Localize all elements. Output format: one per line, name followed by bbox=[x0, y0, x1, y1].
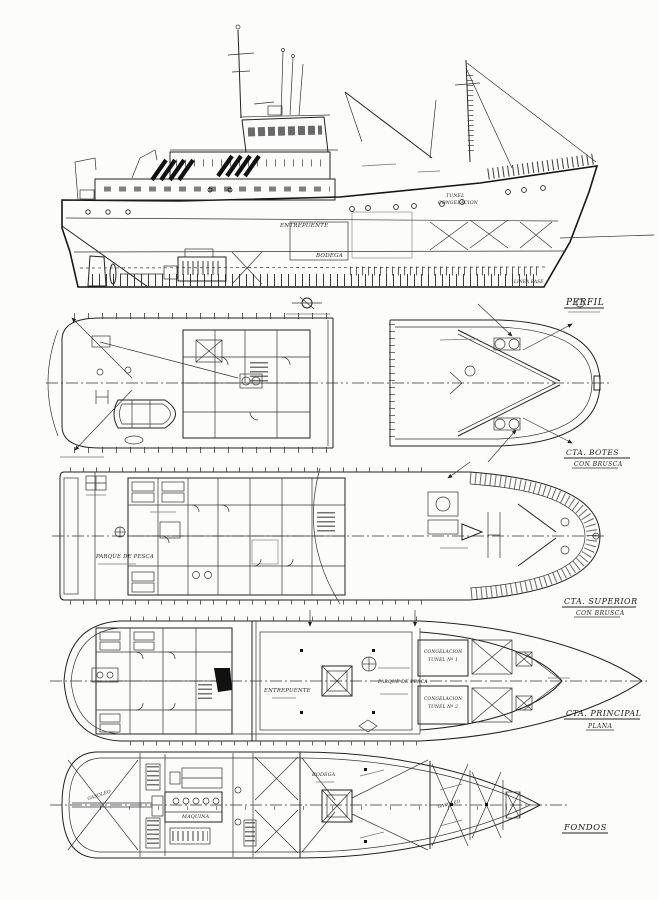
view-subtitle-botes: CON BRUSCA bbox=[574, 461, 623, 468]
arrangement-drawing: ENTREPUENTE BODEGA TUNEL CONGELACION LIN… bbox=[0, 0, 658, 900]
principal-cabins bbox=[92, 628, 232, 734]
botes-bow-plan bbox=[352, 299, 612, 462]
drawing-sheet: ENTREPUENTE BODEGA TUNEL CONGELACION LIN… bbox=[0, 0, 658, 900]
view-subtitle-superior: CON BRUSCA bbox=[576, 610, 625, 617]
view-title-superior: CTA. SUPERIOR bbox=[564, 597, 638, 606]
view-title-fondos: FONDOS bbox=[563, 823, 607, 833]
masts-rigging bbox=[75, 25, 596, 200]
label-entrepuente-perfil: ENTREPUENTE bbox=[279, 223, 328, 229]
view-cta-principal: ENTREPUENTE PARQUE DE PESCA CONGELACION … bbox=[50, 610, 650, 743]
principal-outline bbox=[50, 610, 650, 743]
lifeboat bbox=[114, 400, 176, 428]
shipyard-emblem-icon bbox=[286, 297, 330, 314]
label-linea-base: LINEA BASE bbox=[513, 279, 544, 284]
view-title-principal: CTA. PRINCIPAL bbox=[566, 709, 641, 718]
view-title-perfil: PERFIL bbox=[565, 298, 604, 308]
view-title-botes: CTA. BOTES bbox=[566, 448, 619, 457]
fondos-engine-room bbox=[72, 768, 256, 846]
label-bodega-fondos: BODEGA bbox=[311, 772, 336, 778]
label-tunel2-l1: CONGELACION bbox=[424, 697, 462, 702]
label-maquina: MAQUINA bbox=[181, 814, 210, 820]
superior-deck-gear bbox=[86, 462, 599, 604]
view-subtitle-principal: PLANA bbox=[587, 723, 613, 730]
label-tunel2-l2: TUNEL Nº 2 bbox=[428, 704, 458, 710]
label-tunel1-l1: CONGELACION bbox=[424, 650, 462, 655]
label-entrepuente-principal: ENTREPUENTE bbox=[263, 688, 311, 694]
label-bodega-perfil: BODEGA bbox=[315, 253, 343, 259]
view-cta-botes: CTA. BOTES CON BRUSCA bbox=[46, 299, 630, 468]
label-tunel1-l2: TUNEL Nº 1 bbox=[428, 657, 458, 663]
illegible-notes-perfil bbox=[362, 164, 440, 172]
view-perfil: ENTREPUENTE BODEGA TUNEL CONGELACION LIN… bbox=[62, 25, 654, 314]
superior-deckhouse bbox=[128, 478, 345, 595]
view-cta-superior: PARQUE DE PESCA CTA. SUPERIOR CON BRUSCA bbox=[52, 462, 638, 617]
label-parque-superior: PARQUE DE PESCA bbox=[95, 554, 154, 560]
label-parque-principal: PARQUE DE PESCA bbox=[377, 679, 428, 685]
botes-aft-plan bbox=[46, 316, 348, 457]
label-tunel-1: TUNEL bbox=[446, 193, 464, 199]
superstructure bbox=[95, 102, 338, 200]
label-tunel-2: CONGELACION bbox=[438, 200, 479, 206]
view-fondos: MAQUINA BODEGA GASOLEO GASOLEO FONDOS bbox=[50, 752, 608, 858]
